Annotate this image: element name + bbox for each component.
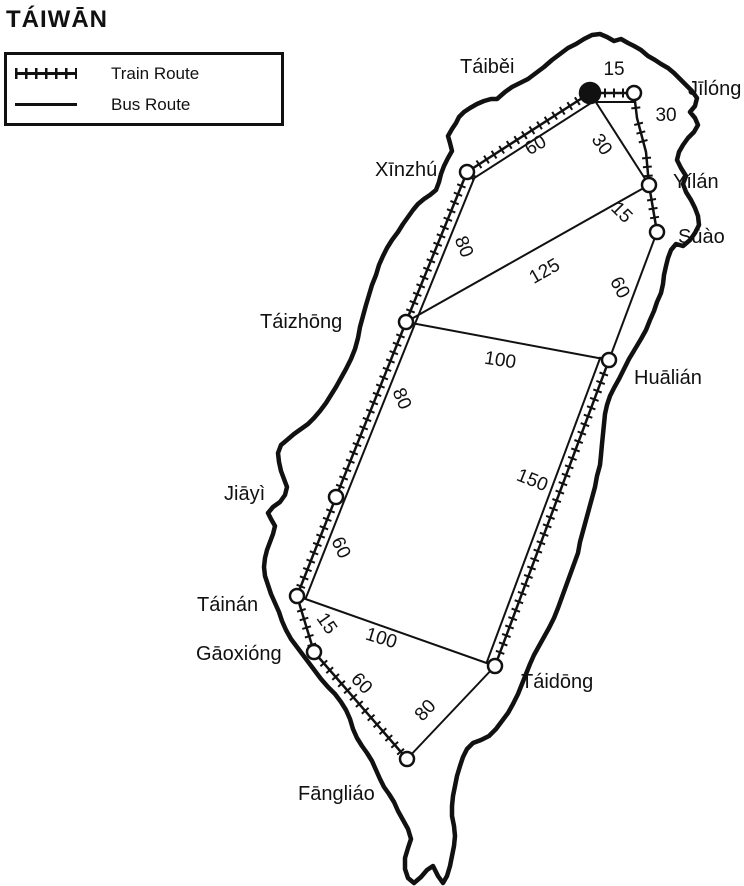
city-label-taibei: Táiběi [460, 56, 514, 78]
route-label-xinzhu-taizhong: 80 [450, 233, 477, 260]
city-marker-jilong [627, 86, 641, 100]
city-label-xinzhu: Xīnzhú [375, 159, 437, 181]
city-marker-fangliao [400, 752, 414, 766]
route-label-yilan-suao: 15 [606, 198, 636, 228]
legend-row-bus: Bus Route [15, 95, 281, 115]
city-marker-hualian [602, 353, 616, 367]
city-label-jiayi: Jiāyì [224, 483, 265, 505]
legend-bus-label: Bus Route [111, 95, 190, 115]
route-label-tainan-taidong: 100 [363, 624, 399, 653]
city-label-suao: Sūào [678, 226, 725, 248]
route-label-jilong-yilan: 30 [655, 105, 676, 126]
legend-train-label: Train Route [111, 64, 199, 84]
city-label-yilan: Yílán [673, 171, 719, 193]
route-label-taibei-jilong: 15 [603, 59, 624, 80]
map-canvas: 153015608080601560150301256010010080Táib… [0, 0, 744, 886]
city-label-gaoxiong: Gāoxióng [196, 643, 282, 665]
taiwan-route-map: 153015608080601560150301256010010080Táib… [0, 0, 744, 886]
legend: Train Route Bus Route [4, 52, 284, 126]
route-train-yilan-suao-ticks [646, 190, 661, 227]
city-marker-jiayi [329, 490, 343, 504]
route-label-taibei-yilan: 30 [587, 130, 616, 159]
city-label-jilong: Jīlóng [688, 78, 741, 100]
city-marker-yilan [642, 178, 656, 192]
city-label-fangliao: Fāngliáo [298, 783, 375, 805]
route-bus-hualian-taidong [487, 357, 601, 663]
route-label-taizhong-jiayi: 80 [388, 385, 416, 413]
legend-row-train: Train Route [15, 64, 281, 84]
city-marker-taizhong [399, 315, 413, 329]
city-marker-gaoxiong [307, 645, 321, 659]
city-marker-taibei [580, 83, 600, 103]
city-marker-tainan [290, 589, 304, 603]
train-route-symbol-icon [15, 68, 77, 79]
city-marker-taidong [488, 659, 502, 673]
city-label-taidong: Táidōng [521, 671, 593, 693]
city-marker-xinzhu [460, 165, 474, 179]
route-label-hualian-taidong: 150 [514, 465, 551, 496]
route-train-tainan-gaoxiong [297, 596, 314, 652]
route-label-tainan-gaoxiong: 15 [312, 609, 341, 638]
route-train-jilong-yilan [634, 93, 649, 185]
route-label-taizhong-yilan: 125 [526, 255, 564, 289]
route-label-taizhong-hualian: 100 [483, 348, 518, 374]
city-label-taizhong: Táizhōng [260, 311, 342, 333]
city-label-tainan: Táinán [197, 594, 258, 616]
route-label-jiayi-tainan: 60 [326, 534, 354, 562]
bus-route-symbol-icon [15, 103, 77, 107]
page-title: TÁIWĀN [6, 6, 108, 34]
route-train-taibei-xinzhu [467, 93, 590, 172]
city-label-hualian: Huālián [634, 367, 702, 389]
city-marker-suao [650, 225, 664, 239]
route-label-suao-hualian: 60 [605, 274, 633, 303]
route-label-fangliao-taidong: 80 [411, 696, 441, 726]
